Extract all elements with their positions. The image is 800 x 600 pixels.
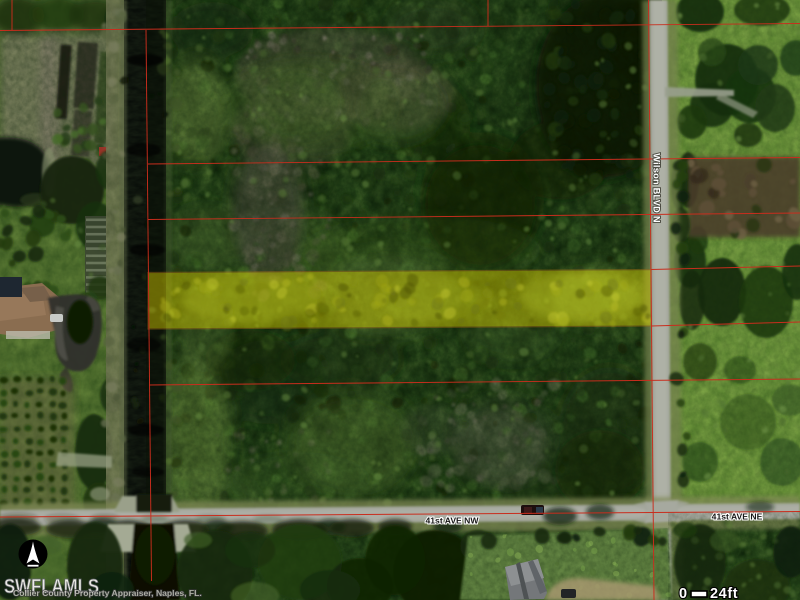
svg-text:Collier County Property Apprai: Collier County Property Appraiser, Naple… bbox=[13, 588, 202, 598]
svg-text:Wilson BLVD N: Wilson BLVD N bbox=[652, 153, 662, 223]
svg-text:0: 0 bbox=[679, 586, 687, 600]
svg-text:41st AVE NW: 41st AVE NW bbox=[425, 516, 479, 526]
svg-text:24ft: 24ft bbox=[710, 586, 738, 600]
svg-text:41st AVE NE: 41st AVE NE bbox=[712, 512, 763, 522]
